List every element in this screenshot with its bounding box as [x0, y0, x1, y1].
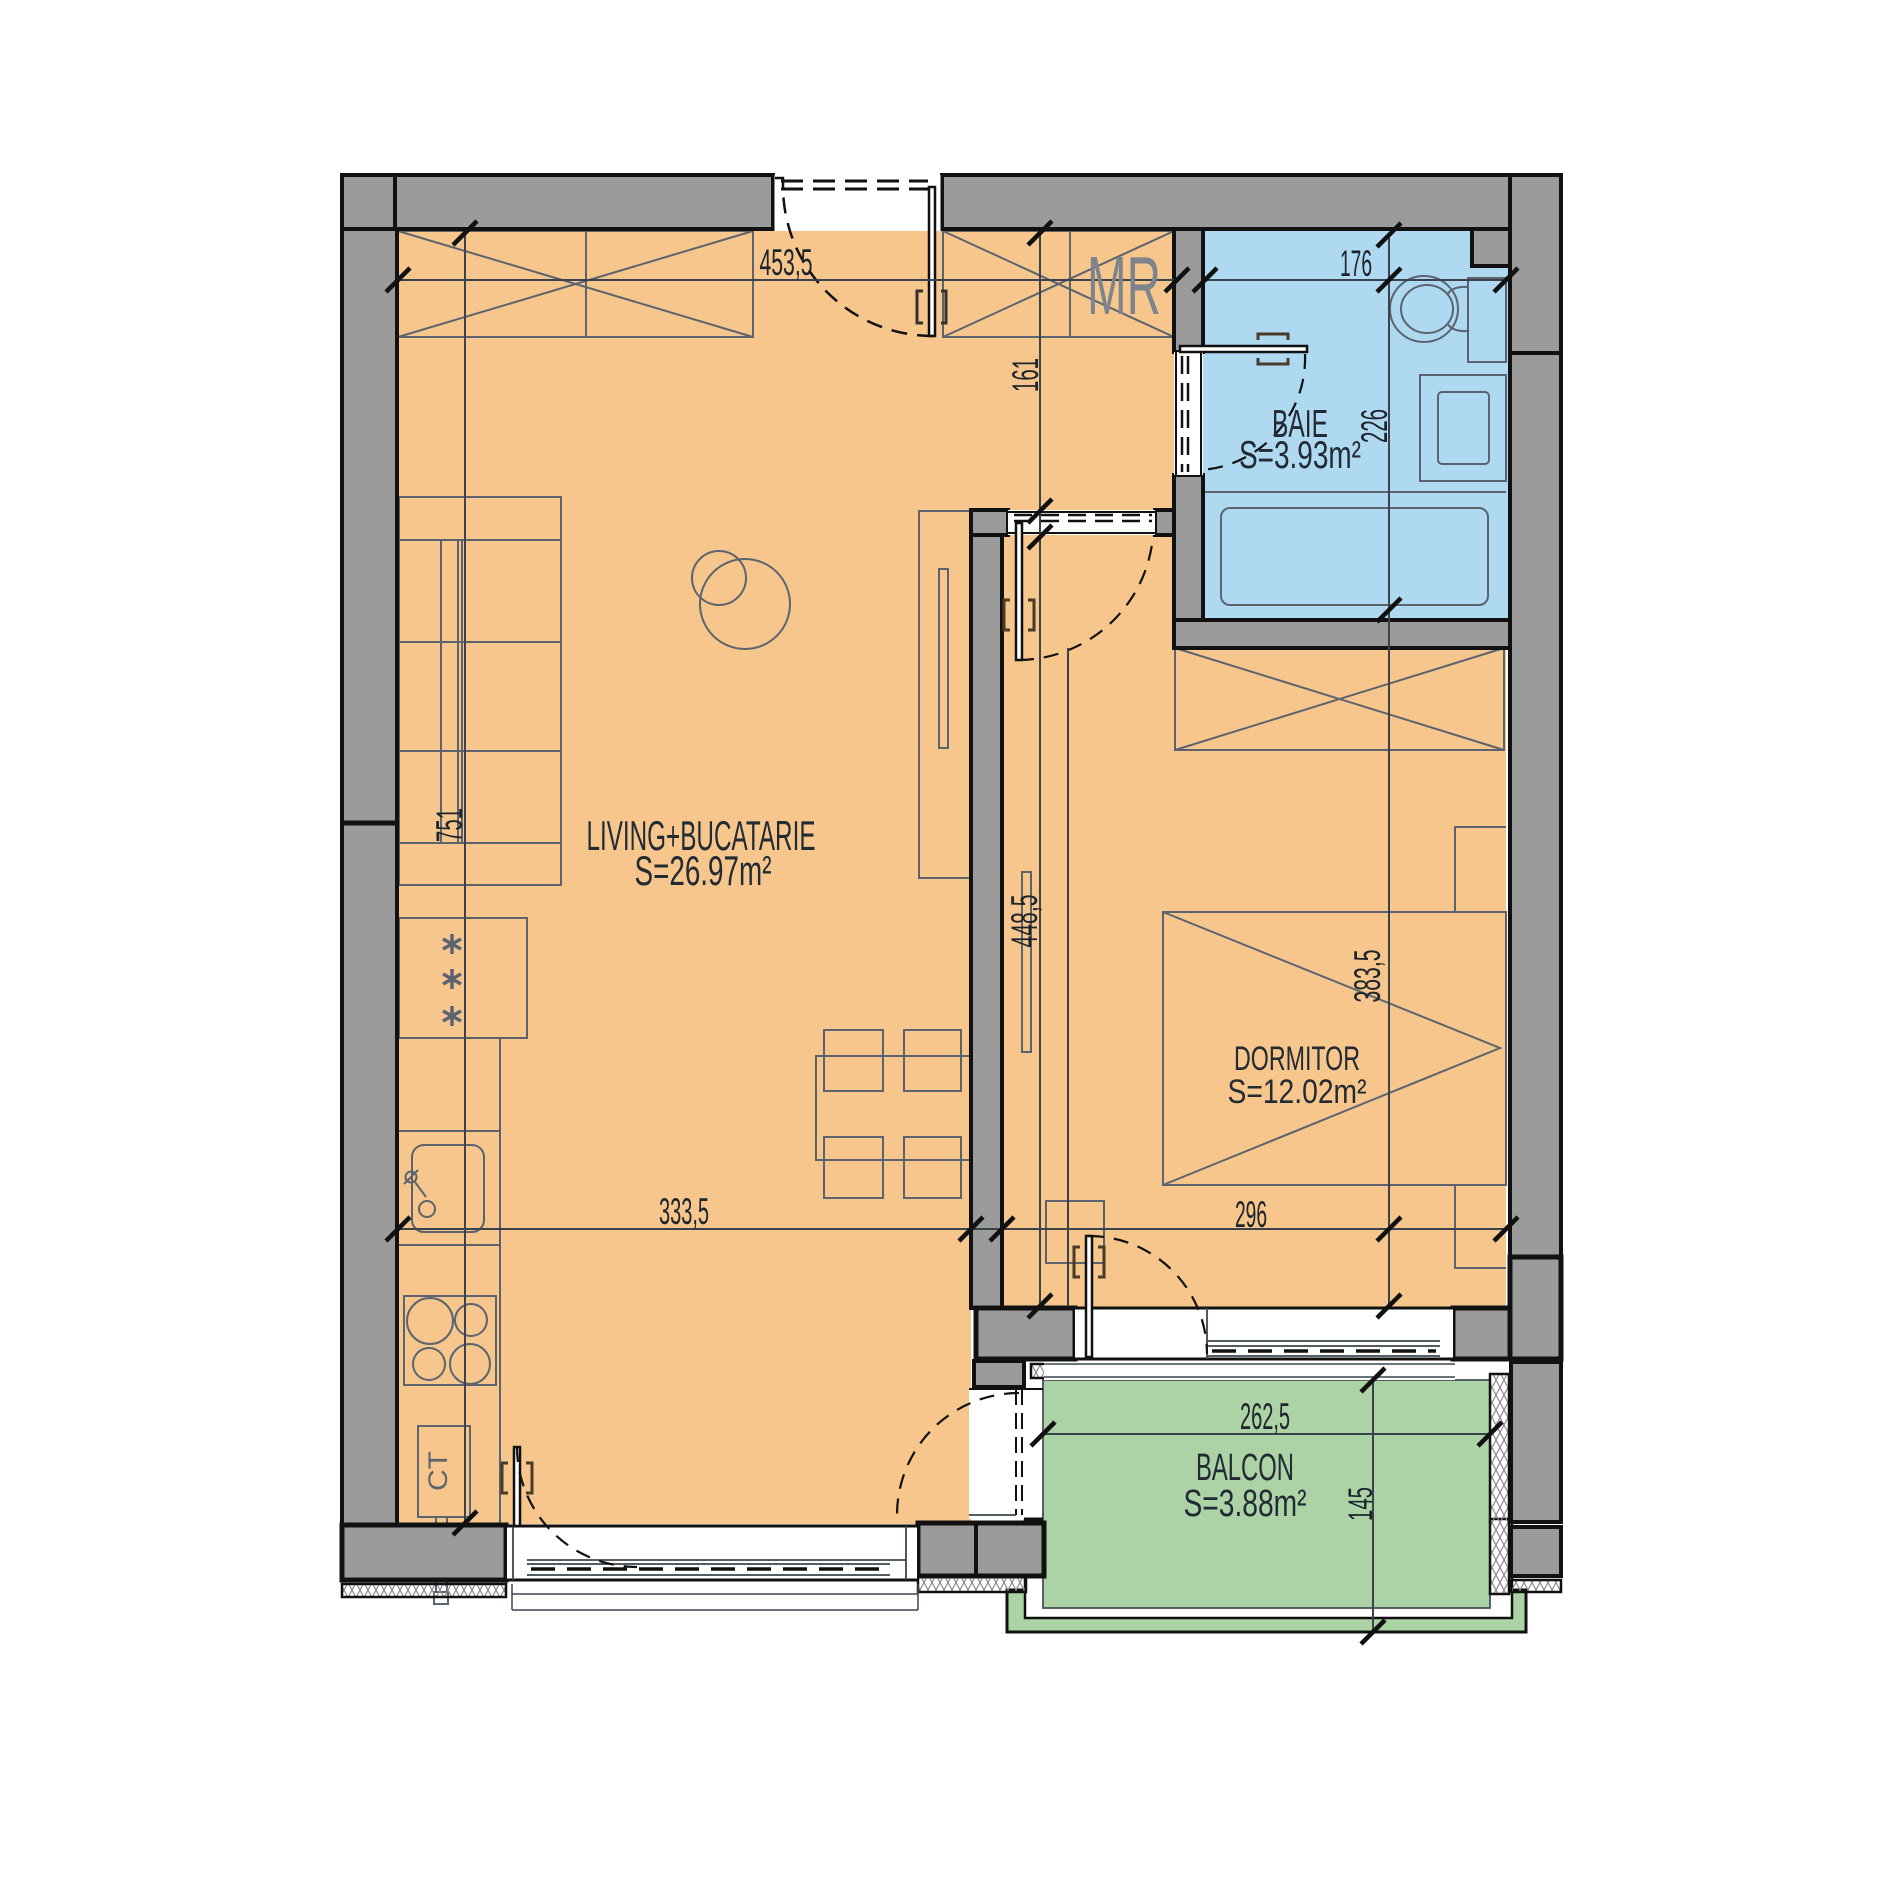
svg-text:S=3.93m²: S=3.93m² [1239, 434, 1361, 477]
svg-text:226: 226 [1354, 409, 1395, 443]
svg-text:453,5: 453,5 [760, 242, 813, 283]
svg-text:145: 145 [1342, 1487, 1380, 1521]
svg-text:333,5: 333,5 [659, 1191, 709, 1232]
svg-text:MR: MR [1087, 239, 1161, 332]
svg-text:296: 296 [1235, 1194, 1267, 1235]
svg-text:S=12.02m²: S=12.02m² [1228, 1073, 1367, 1111]
svg-text:262,5: 262,5 [1240, 1396, 1290, 1437]
svg-text:176: 176 [1340, 243, 1372, 284]
svg-text:S=26.97m²: S=26.97m² [635, 847, 772, 894]
svg-text:383,5: 383,5 [1347, 950, 1388, 1003]
svg-text:CT: CT [423, 1451, 453, 1491]
svg-text:448,5: 448,5 [1004, 895, 1045, 948]
svg-text:S=3.88m²: S=3.88m² [1184, 1483, 1307, 1525]
svg-text:751: 751 [429, 808, 470, 842]
svg-text:161: 161 [1005, 358, 1046, 392]
